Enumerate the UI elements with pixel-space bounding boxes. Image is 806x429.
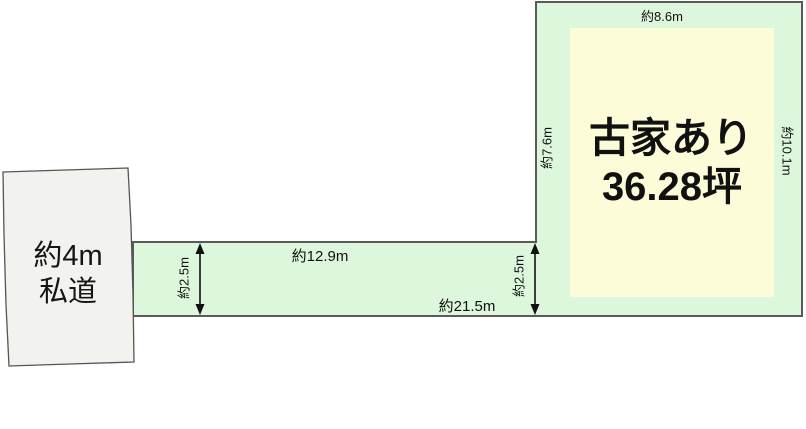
road-label-line1: 約4m bbox=[33, 239, 102, 272]
dim-strip-width-left-label: 約2.5m bbox=[177, 257, 192, 299]
building-note-text: 古家あり bbox=[589, 115, 753, 161]
road-label-line2: 私道 bbox=[39, 275, 97, 308]
dim-right-label: 約10.1m bbox=[779, 126, 794, 175]
dim-top-label: 約8.6m bbox=[641, 9, 683, 24]
area-value-text: 36.28坪 bbox=[602, 165, 742, 209]
diagram-canvas: 約8.6m 約7.6m 約10.1m 約12.9m 約21.5m 約2.5m 約… bbox=[0, 0, 806, 429]
dim-strip-top-label: 約12.9m bbox=[292, 248, 349, 265]
dim-left-label: 約7.6m bbox=[540, 127, 555, 169]
building-area-highlight bbox=[570, 28, 774, 297]
land-plot-diagram: 約8.6m 約7.6m 約10.1m 約12.9m 約21.5m 約2.5m 約… bbox=[0, 0, 806, 429]
dim-strip-width-right-label: 約2.5m bbox=[512, 255, 527, 297]
dim-strip-bottom-label: 約21.5m bbox=[439, 298, 496, 315]
